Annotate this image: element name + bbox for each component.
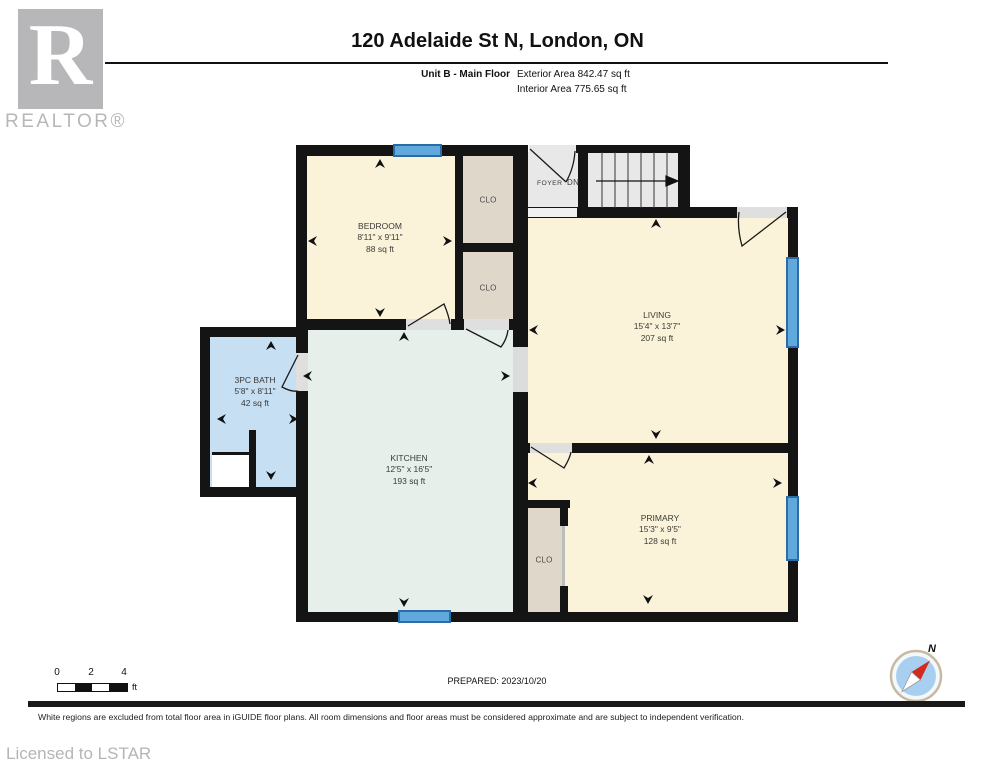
foyer-label: FOYER	[537, 180, 562, 187]
unit-label: Unit B - Main Floor	[290, 69, 510, 80]
scale-segment	[92, 684, 109, 691]
bath-area: 42 sq ft	[234, 398, 275, 409]
living-label: LIVING 15'4" x 13'7" 207 sq ft	[634, 310, 681, 344]
primary-name: PRIMARY	[639, 513, 681, 524]
bath-label: 3PC BATH 5'8" x 8'11" 42 sq ft	[234, 375, 275, 409]
closet-door-opening	[464, 319, 509, 330]
license-text: Licensed to LSTAR	[6, 744, 151, 764]
scale-segment	[109, 684, 127, 691]
primary-area: 128 sq ft	[639, 536, 681, 547]
bedroom-door-opening	[406, 319, 451, 330]
kitchen-living-passage	[513, 347, 528, 392]
wall	[578, 145, 588, 216]
primary-window	[786, 496, 799, 561]
wall	[560, 508, 568, 526]
kitchen-dims: 12'5" x 16'5"	[386, 464, 433, 475]
realtor-logo-letter: R	[29, 12, 93, 100]
scale-unit-label: ft	[132, 682, 137, 692]
wall	[678, 145, 690, 215]
closet-sliding-door	[562, 526, 565, 586]
living-name: LIVING	[634, 310, 681, 321]
wall	[576, 145, 690, 153]
bedroom-dims: 8'11" x 9'11"	[357, 232, 402, 243]
scale-tick-4: 4	[118, 667, 130, 678]
footer-divider	[28, 701, 965, 707]
living-door-opening	[737, 207, 787, 218]
wall	[455, 154, 463, 320]
interior-area: Interior Area 775.65 sq ft	[517, 84, 627, 95]
scale-segment	[58, 684, 75, 691]
closet-1-label: CLO	[479, 196, 496, 205]
entry-door-opening	[529, 145, 576, 153]
wall	[296, 145, 307, 330]
disclaimer-text: White regions are excluded from total fl…	[38, 712, 968, 722]
scale-bar	[57, 683, 128, 692]
stairwell	[588, 151, 678, 208]
bedroom-label: BEDROOM 8'11" x 9'11" 88 sq ft	[357, 221, 402, 255]
bedroom-area: 88 sq ft	[357, 244, 402, 255]
scale-segment	[75, 684, 92, 691]
kitchen-label: KITCHEN 12'5" x 16'5" 193 sq ft	[386, 453, 433, 487]
header-divider	[105, 62, 888, 64]
wall	[457, 243, 513, 252]
wall	[212, 452, 252, 455]
realtor-logo: R	[18, 9, 103, 109]
stairs-dn-label: DN	[567, 178, 579, 187]
closet-3-label: CLO	[535, 556, 552, 565]
primary-dims: 15'3" x 9'5"	[639, 524, 681, 535]
bath-door-opening	[296, 353, 308, 391]
realtor-logo-text: REALTOR®	[5, 111, 135, 133]
compass-north-label: N	[928, 643, 936, 655]
primary-label: PRIMARY 15'3" x 9'5" 128 sq ft	[639, 513, 681, 547]
exterior-area: Exterior Area 842.47 sq ft	[517, 69, 630, 80]
prepared-date: PREPARED: 2023/10/20	[377, 676, 617, 686]
kitchen-window	[398, 610, 451, 623]
kitchen-name: KITCHEN	[386, 453, 433, 464]
wall	[249, 430, 256, 490]
living-dims: 15'4" x 13'7"	[634, 321, 681, 332]
scale-tick-0: 0	[51, 667, 63, 678]
living-area: 207 sq ft	[634, 333, 681, 344]
scale-tick-2: 2	[85, 667, 97, 678]
living-window	[786, 257, 799, 348]
wall	[200, 327, 210, 497]
bedroom-window	[393, 144, 442, 157]
wall	[200, 327, 308, 337]
wall	[296, 612, 798, 622]
page-title: 120 Adelaide St N, London, ON	[0, 30, 995, 53]
bedroom-name: BEDROOM	[357, 221, 402, 232]
wall	[560, 586, 568, 612]
bath-dims: 5'8" x 8'11"	[234, 386, 275, 397]
closet-2-label: CLO	[479, 284, 496, 293]
kitchen-area: 193 sq ft	[386, 476, 433, 487]
bath-name: 3PC BATH	[234, 375, 275, 386]
foyer-living-opening	[528, 208, 577, 217]
compass-icon	[891, 651, 941, 701]
bath-excluded-region	[212, 455, 250, 487]
primary-door-opening	[530, 443, 572, 453]
